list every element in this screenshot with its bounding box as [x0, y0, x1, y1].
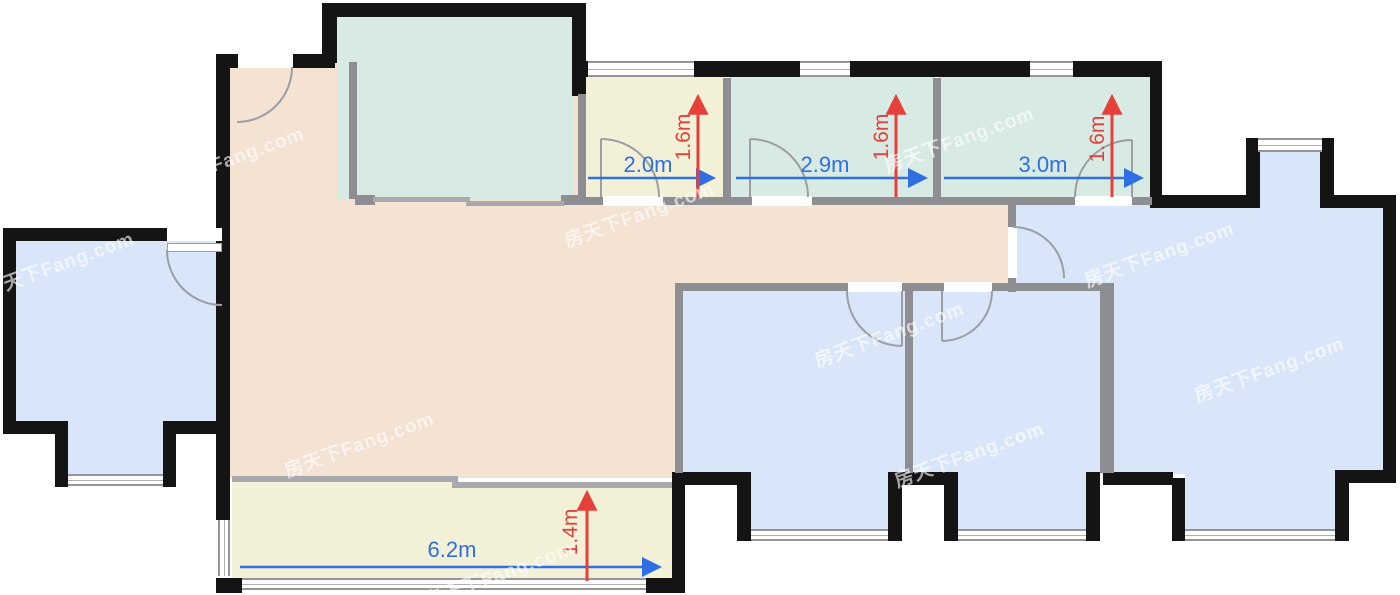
wall-segment — [349, 62, 357, 199]
door-leaf-bedroom-left — [167, 243, 222, 252]
wall-segment — [572, 3, 586, 96]
wall-segment — [1150, 195, 1252, 208]
wall-segment — [1172, 478, 1185, 541]
wall-segment — [900, 283, 944, 291]
floor-plan: 2.0m 2.9m 3.0m 6.2m 1.6m 1.6m 1.6m 1.4m … — [0, 0, 1400, 595]
dim-label-room-a-width: 2.0m — [624, 152, 673, 178]
wall-segment — [646, 578, 685, 593]
wall-segment — [578, 197, 603, 205]
window — [958, 529, 1086, 541]
wall-segment — [944, 472, 958, 541]
door-opening-bedroom-1 — [848, 282, 902, 292]
wall-segment — [1320, 138, 1334, 208]
wall-segment — [578, 94, 586, 199]
window — [1258, 138, 1322, 152]
window — [218, 520, 230, 576]
wall-segment — [694, 61, 802, 77]
wall-segment — [322, 3, 586, 17]
door-opening-room-b — [752, 196, 812, 206]
wall-segment — [1008, 205, 1016, 227]
room-hallway — [675, 203, 1010, 285]
wall-segment — [216, 578, 242, 593]
dim-label-room-c-width: 3.0m — [1019, 152, 1068, 178]
sliding-door-balcony — [452, 482, 672, 488]
sliding-door-kitchen — [466, 201, 564, 206]
window — [68, 474, 163, 486]
wall-segment — [723, 78, 731, 199]
door-opening-bedroom-2 — [944, 282, 992, 292]
wall-segment — [1073, 61, 1162, 77]
dim-label-room-c-depth: 1.6m — [1086, 116, 1110, 163]
wall-segment — [1383, 195, 1396, 483]
door-opening-bedroom-left — [167, 228, 222, 241]
wall-segment — [810, 197, 1075, 205]
wall-segment — [850, 61, 1032, 77]
wall-segment — [1086, 472, 1100, 541]
dim-label-room-a-depth: 1.6m — [672, 114, 696, 161]
room-bedroom-middle-1 — [683, 291, 907, 474]
wall-segment — [55, 421, 68, 487]
room-bedroom-middle-2-bay — [958, 474, 1088, 531]
wall-segment — [293, 54, 335, 68]
dim-label-room-b-width: 2.9m — [801, 152, 850, 178]
wall-segment — [216, 54, 230, 520]
sliding-door-balcony — [232, 476, 458, 482]
room-kitchen — [337, 17, 574, 199]
wall-segment — [1335, 470, 1349, 541]
wall-segment — [1130, 197, 1152, 205]
sliding-door-kitchen — [373, 197, 470, 202]
dim-label-balcony-width: 6.2m — [428, 537, 477, 563]
room-master-bay-bottom — [1185, 474, 1336, 531]
window — [751, 529, 888, 541]
room-master-bay-top — [1260, 150, 1322, 210]
door-opening-master — [1008, 227, 1017, 278]
wall-segment — [3, 228, 16, 434]
wall-segment — [1150, 61, 1162, 203]
window — [1030, 61, 1073, 77]
door-opening-entrance — [238, 54, 293, 68]
window — [588, 61, 694, 77]
window — [1185, 529, 1335, 541]
wall-segment — [355, 195, 375, 205]
wall-segment — [1103, 472, 1173, 485]
wall-segment — [1008, 276, 1016, 292]
room-small-b — [729, 77, 935, 199]
wall-segment — [737, 472, 751, 541]
wall-segment — [672, 472, 685, 593]
room-bedroom-left-bay — [68, 423, 163, 476]
room-balcony — [232, 482, 672, 580]
door-opening-room-c — [1075, 196, 1132, 206]
wall-segment — [675, 283, 850, 291]
wall-segment — [1100, 291, 1114, 473]
room-bedroom-middle-1-bay — [750, 474, 890, 531]
window — [800, 61, 850, 77]
wall-segment — [1348, 470, 1396, 483]
wall-segment — [675, 290, 683, 473]
wall-segment — [163, 433, 176, 487]
